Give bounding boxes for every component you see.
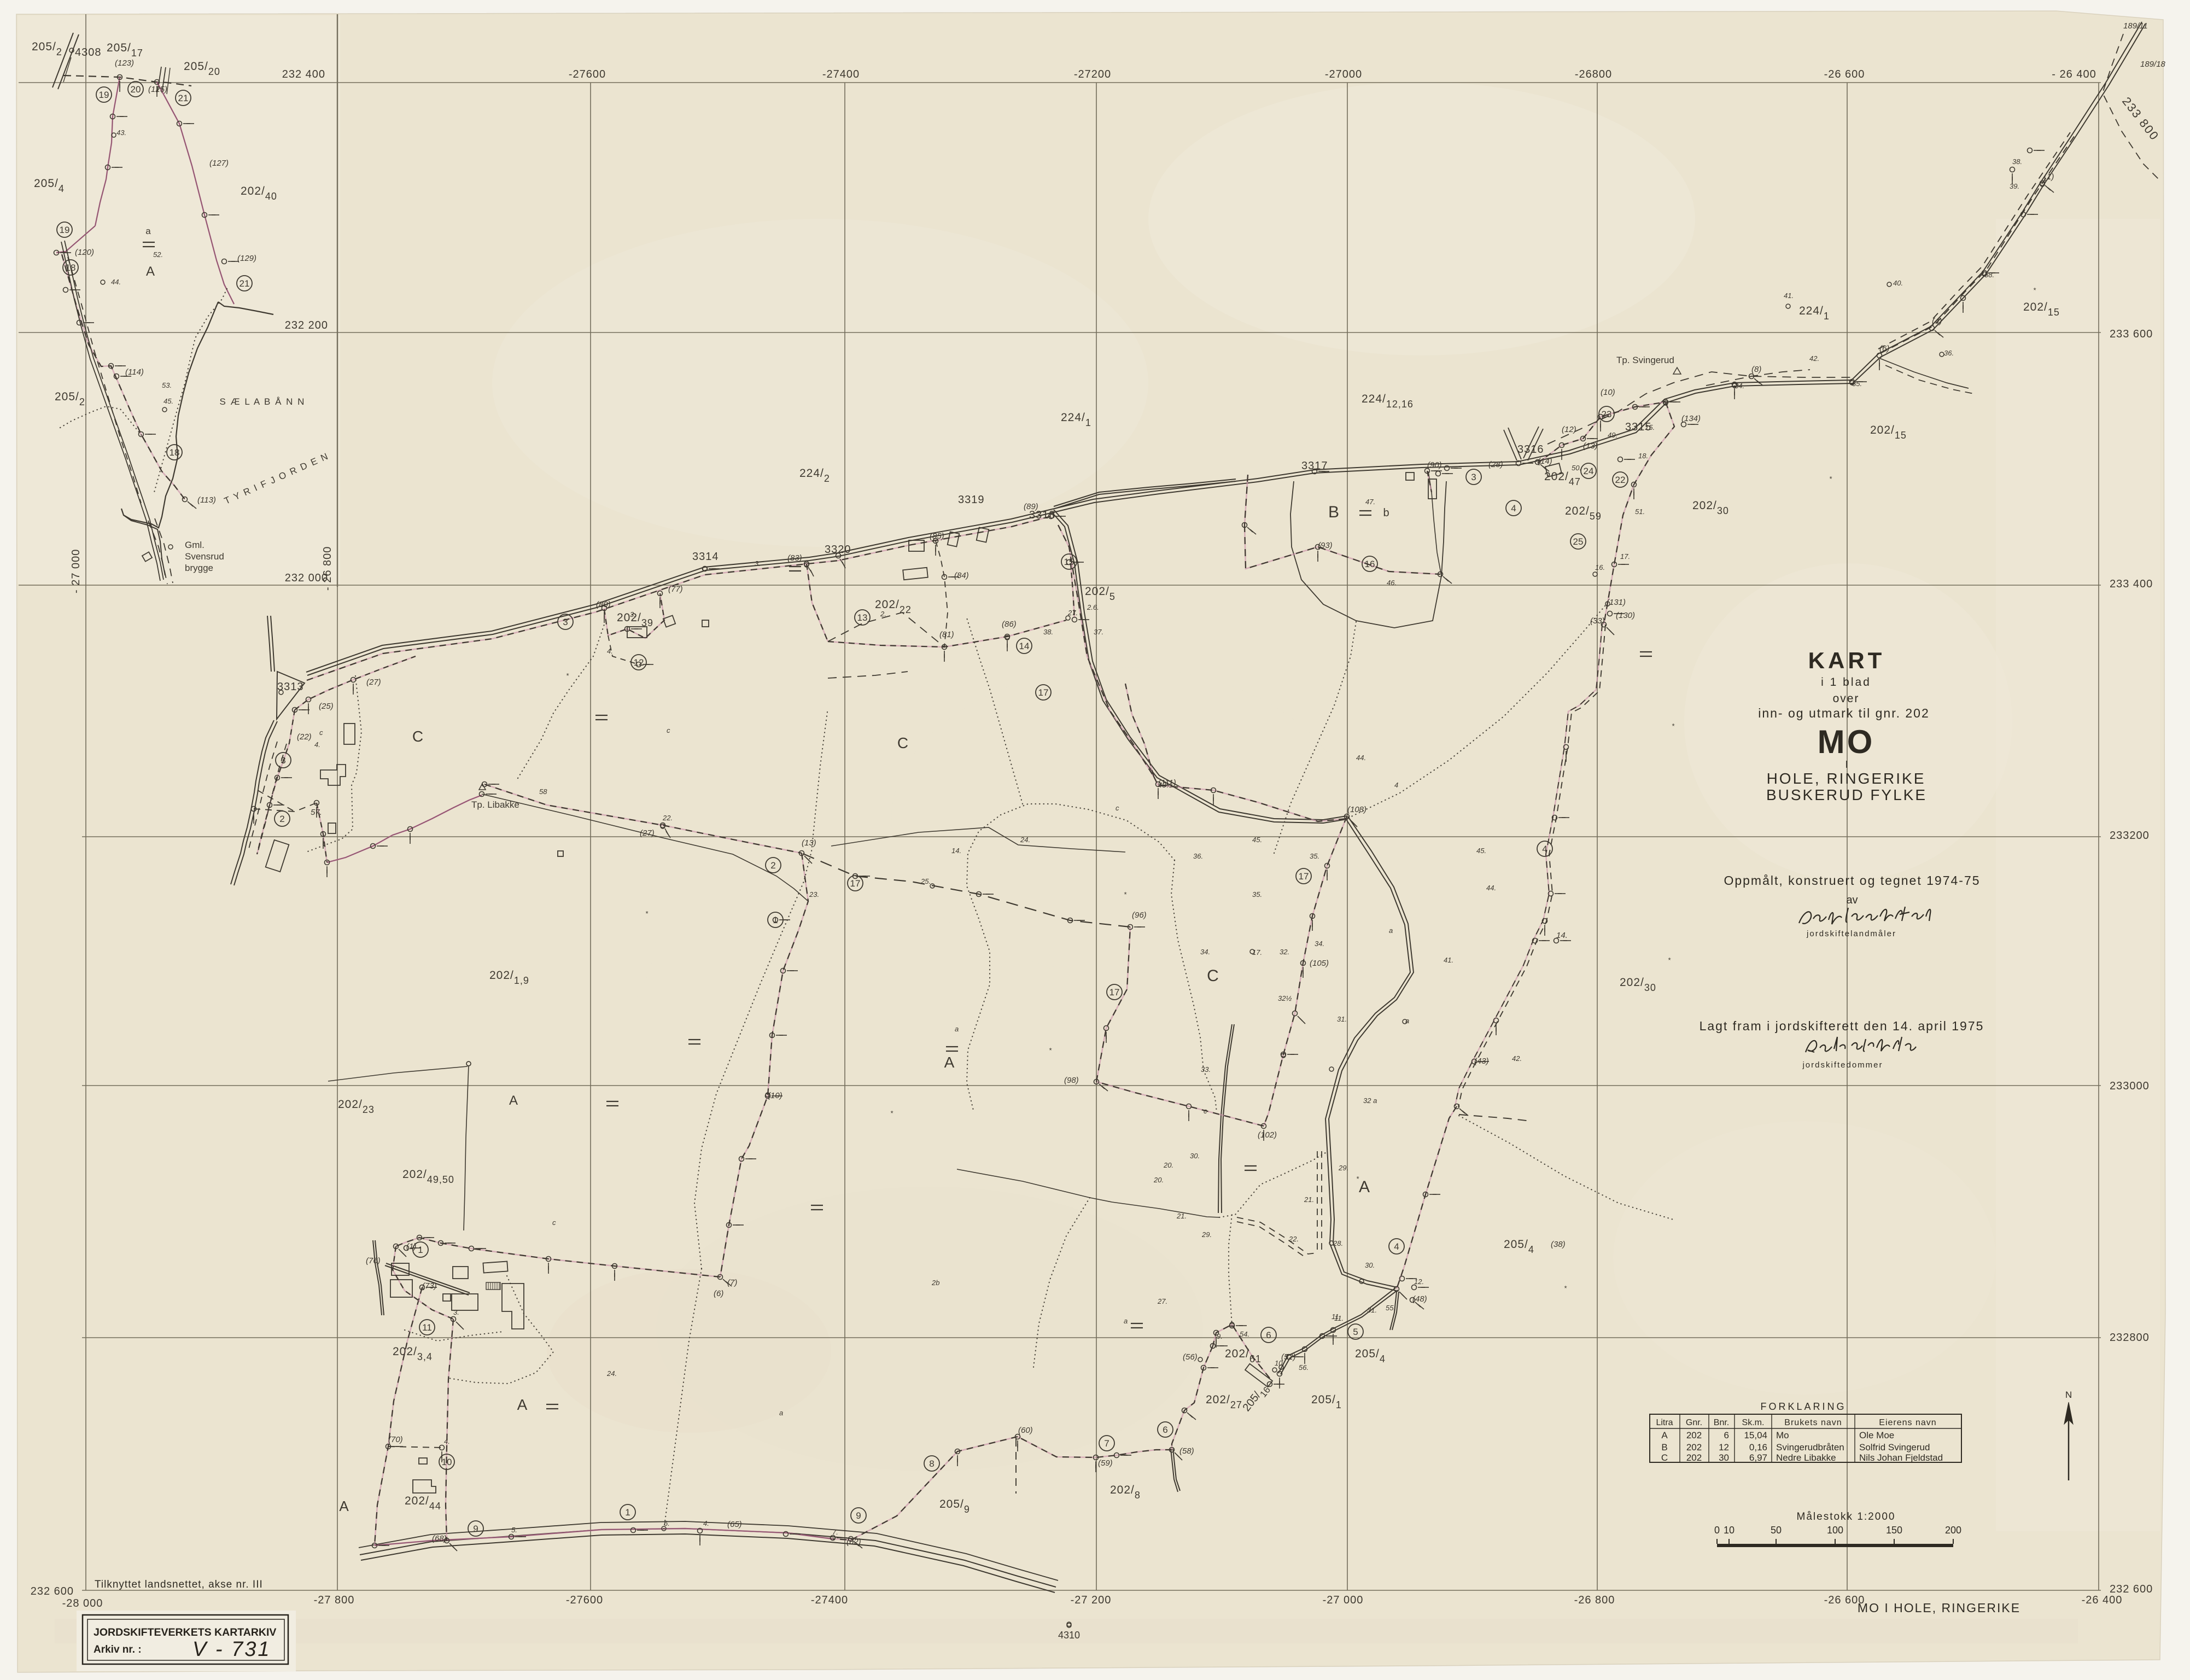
svg-text:Tp. Libakke: Tp. Libakke — [471, 800, 519, 810]
svg-text:37.: 37. — [1094, 628, 1103, 636]
svg-text:30.: 30. — [1190, 1152, 1200, 1160]
svg-text:3313: 3313 — [277, 681, 304, 693]
svg-text:c: c — [552, 1218, 556, 1227]
svg-text:189/18: 189/18 — [2140, 60, 2166, 69]
svg-text:2.6.: 2.6. — [1087, 603, 1099, 611]
svg-text:44.: 44. — [1486, 884, 1496, 892]
svg-text:A: A — [517, 1396, 529, 1413]
svg-text:(27): (27) — [366, 678, 381, 687]
svg-text:(83): (83) — [787, 553, 802, 563]
svg-text:3314: 3314 — [692, 551, 719, 563]
svg-text:2b: 2b — [931, 1279, 939, 1287]
svg-text:54.: 54. — [1240, 1330, 1249, 1338]
svg-text:7: 7 — [1104, 1438, 1109, 1449]
svg-text:(127): (127) — [209, 159, 229, 168]
svg-text:4310: 4310 — [1058, 1630, 1080, 1641]
svg-text:4308: 4308 — [75, 46, 102, 59]
svg-text:34.: 34. — [1315, 940, 1324, 948]
svg-text:-28 000: -28 000 — [62, 1597, 103, 1609]
svg-text:Ole Moe: Ole Moe — [1859, 1430, 1894, 1440]
svg-text:52.: 52. — [153, 250, 163, 259]
svg-text:(33): (33) — [1590, 616, 1605, 626]
svg-text:(129): (129) — [237, 254, 256, 263]
svg-text:HOLE, RINGERIKE: HOLE, RINGERIKE — [1767, 770, 1926, 787]
svg-text:(131): (131) — [1607, 598, 1626, 607]
svg-text:6,97: 6,97 — [1749, 1452, 1767, 1463]
svg-text:-27400: -27400 — [822, 68, 860, 80]
svg-text:2.: 2. — [880, 610, 886, 618]
svg-text:1: 1 — [773, 915, 778, 925]
svg-text:(38): (38) — [1551, 1240, 1566, 1249]
svg-text:6: 6 — [1163, 1425, 1167, 1435]
svg-text:22.: 22. — [662, 814, 673, 822]
svg-text:25: 25 — [1573, 536, 1584, 547]
svg-text:A: A — [944, 1054, 956, 1071]
svg-text:(134): (134) — [1681, 414, 1701, 423]
svg-text:(56): (56) — [1183, 1352, 1198, 1362]
svg-text:- 26 800: - 26 800 — [322, 546, 334, 591]
svg-text:C: C — [1661, 1452, 1668, 1463]
svg-text:(14): (14) — [1538, 457, 1552, 466]
svg-text:200: 200 — [1945, 1525, 1961, 1536]
svg-text:Nedre Libakke: Nedre Libakke — [1776, 1452, 1836, 1463]
svg-text:17.: 17. — [1252, 948, 1262, 956]
svg-text:38.: 38. — [1984, 271, 1994, 279]
svg-text:58: 58 — [539, 787, 547, 796]
svg-text:12: 12 — [1719, 1442, 1729, 1452]
svg-text:3316: 3316 — [1517, 444, 1544, 456]
svg-text:(13): (13) — [802, 838, 816, 848]
svg-text:C: C — [897, 734, 909, 751]
svg-text:1: 1 — [625, 1507, 630, 1518]
svg-text:BUSKERUD FYLKE: BUSKERUD FYLKE — [1766, 786, 1927, 803]
svg-text:jordskiftelandmåler: jordskiftelandmåler — [1806, 929, 1896, 938]
svg-text:A: A — [1359, 1178, 1371, 1196]
svg-text:(43): (43) — [1474, 1057, 1489, 1066]
svg-text:(90): (90) — [1427, 460, 1442, 470]
svg-text:21.: 21. — [1176, 1212, 1187, 1220]
svg-text:50.: 50. — [1572, 464, 1581, 472]
svg-text:22.: 22. — [1288, 1235, 1299, 1243]
svg-text:28.: 28. — [1333, 1239, 1343, 1247]
svg-text:Solfrid Svingerud: Solfrid Svingerud — [1859, 1442, 1930, 1452]
svg-text:(77): (77) — [668, 585, 683, 594]
svg-text:14: 14 — [1019, 641, 1030, 651]
svg-text:7.: 7. — [832, 1528, 838, 1536]
svg-text:150: 150 — [1886, 1525, 1902, 1536]
svg-text:9.: 9. — [1217, 1332, 1223, 1340]
svg-text:232 400: 232 400 — [282, 68, 325, 80]
svg-text:(7): (7) — [727, 1278, 737, 1287]
svg-text:47.: 47. — [1365, 498, 1375, 506]
svg-text:32 a: 32 a — [1363, 1096, 1377, 1105]
svg-text:(108): (108) — [1347, 805, 1366, 814]
svg-text:4.: 4. — [444, 1437, 450, 1445]
svg-text:(6): (6) — [1879, 344, 1889, 353]
svg-text:24.: 24. — [606, 1369, 617, 1378]
svg-text:(114): (114) — [125, 367, 144, 377]
svg-text:12.: 12. — [1414, 1277, 1424, 1286]
svg-text:45.: 45. — [163, 397, 173, 405]
svg-text:MO: MO — [1818, 724, 1875, 760]
svg-text:11.: 11. — [1331, 1312, 1341, 1321]
svg-text:12: 12 — [634, 657, 644, 668]
svg-text:32.: 32. — [1280, 948, 1289, 956]
svg-text:44.: 44. — [111, 278, 121, 286]
svg-text:(73): (73) — [422, 1281, 437, 1291]
svg-text:45.: 45. — [1476, 847, 1486, 855]
svg-text:36.: 36. — [1944, 349, 1954, 357]
svg-text:av: av — [1846, 894, 1858, 906]
svg-text:232 200: 232 200 — [285, 319, 328, 331]
svg-text:18: 18 — [66, 262, 76, 273]
svg-text:53.: 53. — [162, 381, 172, 389]
svg-text:16: 16 — [1365, 559, 1375, 569]
svg-text:4.: 4. — [607, 647, 613, 655]
svg-text:c: c — [667, 726, 670, 734]
svg-text:42.: 42. — [1809, 354, 1819, 363]
svg-text:10.: 10. — [1275, 1359, 1284, 1367]
svg-text:(113): (113) — [197, 495, 216, 505]
svg-text:41.: 41. — [1444, 956, 1453, 964]
svg-text:3317: 3317 — [1301, 460, 1328, 472]
svg-text:33.: 33. — [1201, 1065, 1211, 1074]
svg-text:3318: 3318 — [1029, 509, 1056, 521]
svg-text:232 600: 232 600 — [31, 1585, 74, 1597]
svg-text:inn- og utmark til gnr. 202: inn- og utmark til gnr. 202 — [1758, 706, 1930, 720]
svg-text:Nils Johan Fjeldstad: Nils Johan Fjeldstad — [1859, 1452, 1943, 1463]
svg-text:(123): (123) — [115, 59, 134, 68]
svg-text:4: 4 — [1394, 781, 1398, 789]
svg-text:a: a — [1124, 1317, 1128, 1325]
svg-text:b: b — [1383, 507, 1390, 519]
svg-text:10: 10 — [1724, 1525, 1735, 1536]
svg-text:(96): (96) — [1132, 911, 1147, 920]
svg-text:jordskiftedommer: jordskiftedommer — [1802, 1060, 1883, 1070]
svg-text:Bnr.: Bnr. — [1714, 1418, 1729, 1427]
svg-text:17: 17 — [1038, 687, 1049, 698]
svg-text:(81): (81) — [939, 630, 954, 639]
svg-text:C: C — [1207, 967, 1220, 985]
svg-text:FORKLARING: FORKLARING — [1760, 1401, 1846, 1412]
svg-text:(28): (28) — [1488, 460, 1503, 469]
svg-text:-27600: -27600 — [566, 1594, 603, 1606]
svg-text:6.: 6. — [664, 1519, 670, 1527]
svg-text:Eierens navn: Eierens navn — [1879, 1418, 1936, 1427]
svg-text:3.: 3. — [453, 1308, 459, 1316]
svg-text:Brukets navn: Brukets navn — [1784, 1418, 1842, 1427]
svg-text:202: 202 — [1686, 1452, 1702, 1463]
svg-text:Gnr.: Gnr. — [1686, 1418, 1702, 1427]
svg-text:c: c — [319, 728, 323, 737]
svg-text:44.: 44. — [1356, 754, 1366, 762]
svg-text:10: 10 — [442, 1457, 452, 1467]
svg-text:Lagt fram i jordskifterett den: Lagt fram i jordskifterett den 14. april… — [1700, 1019, 1984, 1033]
svg-text:(70): (70) — [388, 1435, 403, 1444]
svg-text:4.: 4. — [314, 740, 320, 749]
svg-text:(12): (12) — [1562, 425, 1576, 434]
svg-text:17.: 17. — [1620, 552, 1630, 561]
svg-text:-27 000: -27 000 — [1323, 1594, 1364, 1606]
svg-text:a: a — [955, 1025, 959, 1033]
svg-text:3319: 3319 — [958, 494, 985, 506]
svg-text:0: 0 — [1714, 1525, 1720, 1536]
svg-text:39.: 39. — [2010, 182, 2019, 190]
svg-text:(10): (10) — [768, 1091, 782, 1100]
svg-text:4.: 4. — [703, 1519, 709, 1527]
svg-text:3315: 3315 — [1625, 421, 1652, 433]
svg-text:43½: 43½ — [1158, 781, 1172, 789]
svg-text:100: 100 — [1827, 1525, 1843, 1536]
svg-text:232 600: 232 600 — [2110, 1583, 2153, 1595]
svg-text:31.: 31. — [1337, 1015, 1347, 1023]
svg-text:-26800: -26800 — [1575, 68, 1612, 80]
svg-text:9: 9 — [473, 1524, 478, 1534]
svg-text:232800: 232800 — [2110, 1332, 2150, 1344]
svg-text:(65): (65) — [727, 1520, 742, 1529]
svg-text:3320: 3320 — [825, 544, 851, 556]
svg-text:c: c — [1204, 1107, 1207, 1115]
svg-text:41.: 41. — [1784, 291, 1794, 300]
svg-text:A: A — [509, 1093, 519, 1108]
svg-text:11: 11 — [422, 1322, 432, 1333]
svg-text:A: A — [146, 264, 156, 279]
svg-text:(6): (6) — [714, 1289, 723, 1298]
svg-text:(1): (1) — [2044, 172, 2054, 182]
svg-text:V - 731: V - 731 — [192, 1638, 271, 1661]
svg-text:22: 22 — [1615, 475, 1626, 485]
svg-text:(80): (80) — [596, 600, 611, 609]
svg-text:(25): (25) — [319, 702, 334, 711]
svg-text:-27200: -27200 — [1074, 68, 1111, 80]
svg-text:21.: 21. — [1304, 1195, 1314, 1204]
svg-text:(4): (4) — [1932, 317, 1942, 326]
svg-text:-27 800: -27 800 — [314, 1594, 355, 1606]
svg-text:27.: 27. — [1067, 609, 1078, 617]
svg-text:56.: 56. — [1299, 1363, 1309, 1372]
svg-text:3: 3 — [1471, 472, 1476, 482]
svg-text:15: 15 — [1064, 557, 1074, 567]
svg-text:Målestokk 1:2000: Målestokk 1:2000 — [1797, 1511, 1896, 1522]
svg-text:49.: 49. — [1608, 431, 1617, 439]
svg-text:JORDSKIFTEVERKETS KARTARKIV: JORDSKIFTEVERKETS KARTARKIV — [94, 1626, 276, 1638]
svg-text:20.: 20. — [1153, 1176, 1164, 1184]
svg-text:5: 5 — [1353, 1327, 1358, 1337]
svg-text:(62): (62) — [846, 1537, 861, 1547]
svg-text:a: a — [145, 226, 151, 236]
svg-text:34.: 34. — [1200, 948, 1210, 956]
svg-text:27.: 27. — [1157, 1297, 1167, 1305]
svg-text:(102): (102) — [1258, 1130, 1277, 1140]
svg-text:6: 6 — [1266, 1330, 1271, 1340]
svg-text:B: B — [1661, 1442, 1667, 1452]
svg-text:4: 4 — [1542, 844, 1547, 854]
svg-text:KART: KART — [1808, 647, 1885, 673]
svg-text:c: c — [1116, 804, 1119, 812]
svg-text:202: 202 — [1686, 1442, 1702, 1452]
svg-text:Litra: Litra — [1656, 1418, 1673, 1427]
svg-text:A: A — [339, 1498, 349, 1514]
svg-text:over: over — [1833, 692, 1860, 705]
svg-text:(68): (68) — [432, 1534, 447, 1543]
svg-text:i 1 blad: i 1 blad — [1821, 676, 1871, 689]
svg-text:35.: 35. — [1852, 380, 1862, 388]
svg-text:43.: 43. — [116, 129, 126, 137]
svg-text:(27): (27) — [640, 829, 655, 838]
svg-text:32½: 32½ — [1278, 994, 1292, 1002]
svg-text:(93): (93) — [1318, 541, 1333, 550]
svg-text:(120): (120) — [75, 248, 94, 257]
svg-text:(58): (58) — [1179, 1446, 1194, 1456]
svg-text:B: B — [1328, 503, 1340, 521]
svg-text:38.: 38. — [1043, 628, 1053, 636]
svg-text:-27400: -27400 — [811, 1594, 848, 1606]
svg-text:25.: 25. — [920, 877, 931, 885]
svg-text:C: C — [412, 728, 424, 745]
svg-text:29.: 29. — [1201, 1230, 1212, 1239]
svg-text:233200: 233200 — [2110, 830, 2150, 842]
svg-text:(1): (1) — [406, 1242, 416, 1251]
svg-text:15,04: 15,04 — [1744, 1430, 1767, 1440]
svg-text:- 27 000: - 27 000 — [70, 549, 82, 593]
svg-text:18.: 18. — [1638, 452, 1648, 460]
svg-text:8: 8 — [929, 1459, 934, 1469]
svg-text:Oppmålt, konstruert og tegnet: Oppmålt, konstruert og tegnet 1974-75 — [1724, 873, 1980, 888]
svg-text:brygge: brygge — [185, 563, 213, 573]
svg-text:(86): (86) — [1002, 620, 1017, 629]
svg-text:30: 30 — [1719, 1452, 1729, 1463]
svg-text:-26 400: -26 400 — [2082, 1594, 2123, 1606]
svg-text:(22): (22) — [297, 732, 312, 742]
svg-text:233 400: 233 400 — [2110, 578, 2153, 590]
svg-text:-26 800: -26 800 — [1574, 1594, 1615, 1606]
svg-text:31.: 31. — [1367, 1306, 1377, 1314]
svg-text:(13): (13) — [1583, 441, 1598, 451]
svg-text:-27000: -27000 — [1325, 68, 1362, 80]
svg-text:6: 6 — [1724, 1430, 1729, 1440]
svg-text:a: a — [1405, 1017, 1409, 1025]
svg-text:Arkiv nr. :: Arkiv nr. : — [94, 1644, 142, 1655]
svg-text:24: 24 — [1584, 466, 1594, 476]
svg-text:13: 13 — [857, 612, 868, 623]
svg-text:46.: 46. — [1387, 579, 1397, 587]
svg-text:17: 17 — [1299, 871, 1309, 882]
svg-text:30.: 30. — [1365, 1261, 1375, 1269]
svg-text:35.: 35. — [1252, 890, 1262, 899]
svg-text:18: 18 — [170, 447, 180, 458]
svg-text:Tp. Svingerud: Tp. Svingerud — [1616, 355, 1674, 365]
svg-text:35.: 35. — [1310, 852, 1319, 860]
svg-text:16.: 16. — [1595, 563, 1605, 571]
svg-text:21: 21 — [240, 278, 250, 289]
svg-text:1: 1 — [418, 1245, 423, 1255]
svg-text:(105): (105) — [1310, 959, 1329, 968]
svg-text:24.: 24. — [1020, 836, 1030, 844]
svg-text:Sk.m.: Sk.m. — [1742, 1418, 1765, 1427]
svg-text:(125): (125) — [148, 85, 167, 94]
svg-text:21: 21 — [178, 93, 189, 103]
svg-text:(130): (130) — [1616, 611, 1635, 620]
svg-text:-27600: -27600 — [569, 68, 606, 80]
svg-text:19: 19 — [99, 90, 109, 100]
svg-text:17: 17 — [850, 878, 861, 889]
svg-text:55.: 55. — [1386, 1304, 1395, 1312]
svg-text:I: I — [1845, 759, 1848, 770]
svg-text:38.: 38. — [2012, 157, 2022, 166]
svg-text:23: 23 — [1602, 409, 1612, 419]
svg-text:17: 17 — [1109, 987, 1120, 997]
svg-text:2: 2 — [279, 814, 284, 824]
svg-text:(10): (10) — [1601, 388, 1615, 397]
svg-text:(84): (84) — [954, 571, 969, 580]
svg-text:-27 200: -27 200 — [1071, 1594, 1112, 1606]
svg-text:a: a — [1389, 926, 1393, 935]
svg-text:S Æ L A B Å N N: S Æ L A B Å N N — [220, 396, 306, 407]
svg-text:N: N — [2065, 1390, 2072, 1400]
svg-text:9: 9 — [856, 1510, 861, 1521]
svg-text:A: A — [1661, 1430, 1668, 1440]
svg-text:36.: 36. — [1193, 852, 1203, 860]
svg-text:19: 19 — [60, 225, 70, 235]
svg-text:2: 2 — [770, 860, 775, 871]
svg-text:-26 600: -26 600 — [1824, 68, 1865, 80]
svg-text:51.: 51. — [1635, 507, 1645, 516]
svg-text:42.: 42. — [1512, 1054, 1522, 1063]
svg-text:23.: 23. — [809, 890, 819, 899]
svg-text:3.: 3. — [755, 559, 761, 568]
svg-text:Tilknyttet landsnettet, akse: Tilknyttet landsnettet, akse nr. III — [95, 1579, 263, 1590]
svg-text:5.: 5. — [511, 1526, 517, 1534]
svg-text:(98): (98) — [1064, 1076, 1079, 1085]
svg-text:Mo: Mo — [1776, 1430, 1789, 1440]
svg-text:(60): (60) — [1018, 1426, 1033, 1435]
svg-text:0,16: 0,16 — [1749, 1442, 1767, 1452]
svg-text:14.: 14. — [1556, 931, 1568, 940]
svg-text:3: 3 — [281, 755, 285, 766]
svg-text:3: 3 — [563, 617, 568, 627]
svg-text:45.: 45. — [1252, 836, 1262, 844]
svg-text:29.: 29. — [1338, 1164, 1348, 1172]
svg-text:40.: 40. — [1893, 279, 1903, 287]
svg-text:34.: 34. — [1735, 382, 1744, 390]
svg-text:a: a — [779, 1409, 783, 1417]
svg-text:20: 20 — [131, 84, 141, 95]
svg-text:20.: 20. — [1163, 1161, 1173, 1169]
svg-text:189/11: 189/11 — [2123, 21, 2148, 31]
svg-text:(8): (8) — [1751, 365, 1761, 374]
svg-text:4: 4 — [1394, 1241, 1399, 1252]
svg-text:4: 4 — [1511, 503, 1516, 514]
svg-text:Svingerudbråten: Svingerudbråten — [1776, 1442, 1844, 1452]
svg-text:(76): (76) — [366, 1256, 381, 1265]
svg-text:57.: 57. — [311, 808, 322, 817]
svg-text:233 600: 233 600 — [2110, 328, 2153, 340]
svg-text:202: 202 — [1686, 1430, 1702, 1440]
svg-text:(59): (59) — [1098, 1459, 1113, 1468]
svg-text:50: 50 — [1771, 1525, 1782, 1536]
svg-text:Gml.: Gml. — [185, 540, 205, 550]
svg-text:233000: 233000 — [2110, 1080, 2150, 1092]
svg-text:14.: 14. — [951, 847, 961, 855]
svg-text:MO I HOLE, RINGERIKE: MO I HOLE, RINGERIKE — [1858, 1601, 2020, 1615]
svg-text:(85): (85) — [930, 532, 944, 541]
svg-text:(48): (48) — [1412, 1294, 1427, 1304]
svg-text:- 26 400: - 26 400 — [2052, 68, 2096, 80]
svg-text:Svensrud: Svensrud — [185, 551, 224, 562]
